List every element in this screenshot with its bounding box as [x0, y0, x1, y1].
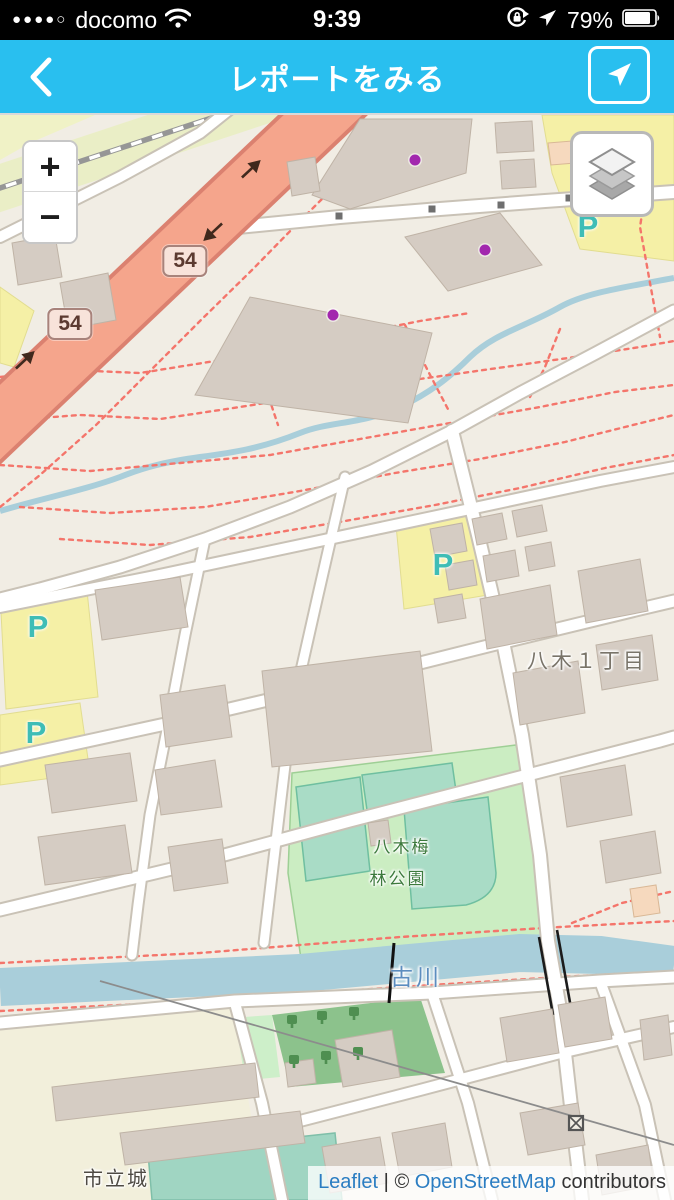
zoom-out-button[interactable]: −	[24, 192, 76, 242]
copyright-symbol: ©	[394, 1171, 414, 1193]
zoom-in-button[interactable]: +	[24, 142, 76, 192]
page-title: レポートをみる	[0, 40, 674, 113]
app-screen: ●●●●○ docomo 9:39	[0, 0, 674, 1200]
rotation-lock-icon	[505, 6, 529, 35]
battery-icon	[622, 8, 662, 33]
nav-bar: レポートをみる	[0, 40, 674, 115]
attribution-separator: |	[378, 1171, 394, 1193]
locate-me-button[interactable]	[588, 46, 650, 104]
map-attribution: Leaflet | © OpenStreetMap contributors	[308, 1166, 674, 1200]
pylon-icon	[569, 1116, 583, 1130]
navigation-arrow-icon	[604, 60, 634, 90]
contributors-label: contributors	[556, 1171, 666, 1193]
battery-percent-label: 79%	[567, 7, 613, 34]
layers-icon	[583, 147, 641, 201]
zoom-control: + −	[22, 140, 78, 244]
leaflet-link[interactable]: Leaflet	[318, 1171, 378, 1193]
location-arrow-icon	[538, 8, 558, 33]
layers-button[interactable]	[570, 131, 654, 217]
map-canvas[interactable]: 八木１丁目 八木梅 林公園 古川 市立城 5454PPPP + − Leafle…	[0, 115, 674, 1200]
map-tiles	[0, 115, 674, 1200]
status-bar: ●●●●○ docomo 9:39	[0, 0, 674, 40]
openstreetmap-link[interactable]: OpenStreetMap	[415, 1171, 556, 1193]
